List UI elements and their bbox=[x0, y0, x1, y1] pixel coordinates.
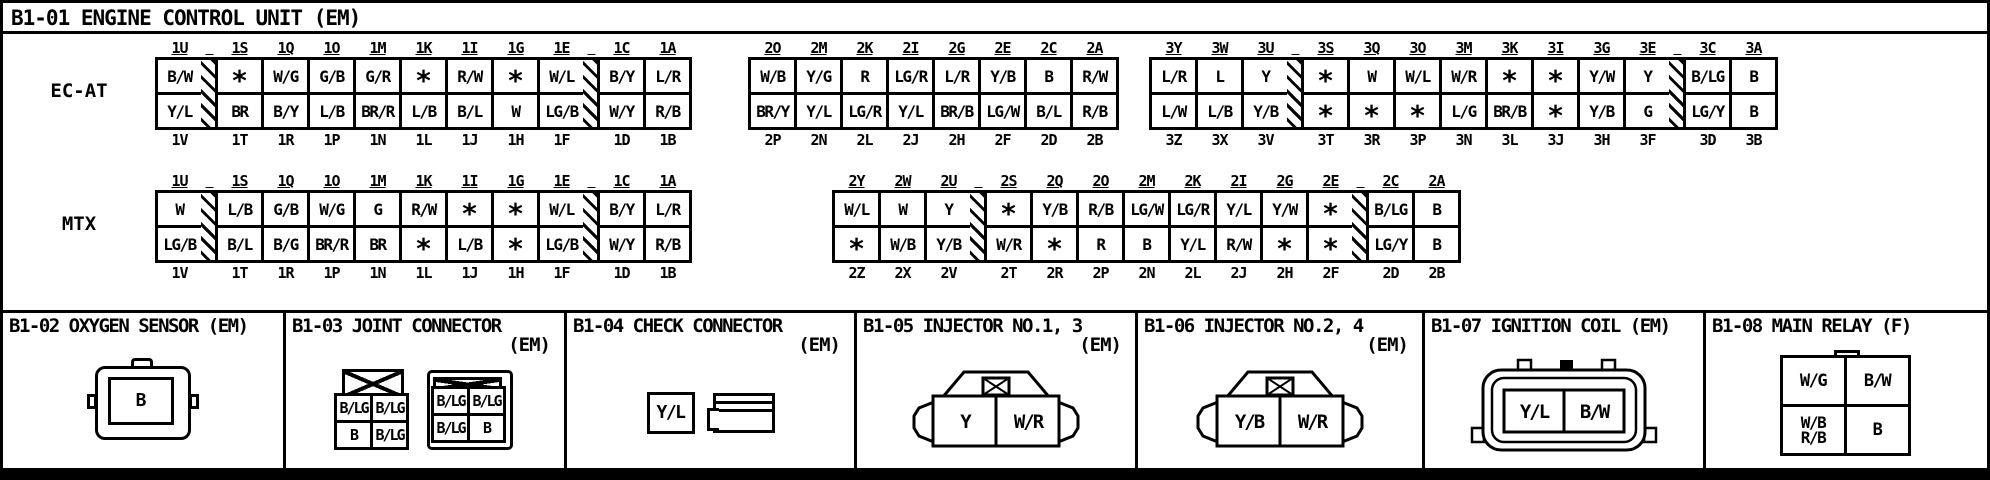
pin-cell: B bbox=[1729, 57, 1778, 95]
pin-header-label: 2O bbox=[1076, 171, 1125, 190]
pin-cell: L/R bbox=[643, 190, 692, 228]
pin-header-label: 1A bbox=[643, 171, 692, 190]
pin-header-label: 1S bbox=[215, 38, 264, 57]
pin-cell: * bbox=[1393, 92, 1442, 130]
pin-footer-label: 3N bbox=[1439, 130, 1488, 149]
pin-cell: L/R bbox=[932, 57, 981, 95]
pin-header-label: 2U bbox=[924, 171, 973, 190]
pin-cell: Y/B bbox=[924, 225, 973, 263]
pin-cell: B/LG bbox=[370, 393, 409, 423]
pin-header-label: 3G bbox=[1577, 38, 1626, 57]
pin-column: 2CB/LGLG/Y2D bbox=[1366, 171, 1415, 282]
pin-cell: LG/B bbox=[537, 92, 586, 130]
pin-footer-label: 1F bbox=[537, 263, 586, 282]
pin-column: 2KRLG/R2L bbox=[840, 38, 889, 149]
pin-header-label: 2Q bbox=[1030, 171, 1079, 190]
pin-cell: Y/W bbox=[1260, 190, 1309, 228]
pin-group: 2OW/BBR/Y2P2MY/GY/L2N2KRLG/R2L2ILG/RY/L2… bbox=[748, 38, 1119, 149]
pin-header-label: 2I bbox=[886, 38, 935, 57]
pin-column: 1G**1H bbox=[491, 171, 540, 282]
pin-cell: R/W bbox=[1214, 225, 1263, 263]
pin-footer-label: 2V bbox=[924, 263, 973, 282]
pin-cell: R/B bbox=[1070, 92, 1119, 130]
pin-column: 3UYY/B3V bbox=[1241, 38, 1290, 149]
pin-footer-label: 2N bbox=[1122, 263, 1171, 282]
pin-footer-label: 1B bbox=[643, 130, 692, 149]
pin-column: 3OW/L*3P bbox=[1393, 38, 1442, 149]
pin-footer-label: 1R bbox=[261, 263, 310, 282]
oxygen-connector: B bbox=[95, 366, 191, 440]
pin-header-label: 2K bbox=[1168, 171, 1217, 190]
pin-header-label: 1E bbox=[537, 38, 586, 57]
pin-cell: * bbox=[1306, 190, 1355, 228]
pin-cell: * bbox=[1347, 92, 1396, 130]
pin-header-label: 1K bbox=[399, 38, 448, 57]
pin-cell: W/L bbox=[1393, 57, 1442, 95]
pin-column: 1MGBR1N bbox=[353, 171, 402, 282]
pin-column: 2IY/LR/W2J bbox=[1214, 171, 1263, 282]
pin-header-label: 1I bbox=[445, 38, 494, 57]
pin-group: 2YW/L*2Z2WWW/B2X2UYY/B2V 2S*W/R2T2QY/B*2… bbox=[832, 171, 1461, 282]
pin-cell: W/G bbox=[1780, 355, 1847, 407]
pin-cell: W/Y bbox=[597, 225, 646, 263]
pin-column: 1QG/BB/G1R bbox=[261, 171, 310, 282]
pin-cell: B/W bbox=[1844, 355, 1911, 407]
pin-column: 2CBB/L2D bbox=[1024, 38, 1073, 149]
pin-header-label: 3E bbox=[1623, 38, 1672, 57]
pin-cell: * bbox=[1306, 225, 1355, 263]
pin-footer-label: 3T bbox=[1301, 130, 1350, 149]
pin-cell: * bbox=[399, 225, 448, 263]
pin-header-label: 2A bbox=[1412, 171, 1461, 190]
pin-header-label: 2E bbox=[978, 38, 1027, 57]
pin-cell: R/B bbox=[1076, 190, 1125, 228]
pin-header-label: 1Q bbox=[261, 171, 310, 190]
pin-header-label: 1M bbox=[353, 38, 402, 57]
panel-title: B1-02 OXYGEN SENSOR (EM) bbox=[3, 313, 283, 337]
pin-column: 2GY/W*2H bbox=[1260, 171, 1309, 282]
connector-panels-row: B1-02 OXYGEN SENSOR (EM) B B1-03 JOINT C… bbox=[0, 313, 1990, 471]
pin-cell: Y bbox=[1623, 57, 1672, 95]
pin-cell: G/B bbox=[307, 57, 356, 95]
pin-footer-label: 3V bbox=[1241, 130, 1290, 149]
pin-cell: W/Y bbox=[597, 92, 646, 130]
pin-footer-label: 3L bbox=[1485, 130, 1534, 149]
pin-cell: B/Y bbox=[597, 190, 646, 228]
pin-header-label: 2C bbox=[1024, 38, 1073, 57]
pin-cell: * bbox=[1260, 225, 1309, 263]
pin-header-label: 2W bbox=[878, 171, 927, 190]
pin-cell: Y/L bbox=[1214, 190, 1263, 228]
injector-connector: Y/B W/R bbox=[1174, 366, 1386, 456]
oxygen-connector-drawing: B bbox=[3, 337, 283, 468]
connector-row: EC-AT1UB/WY/L1V 1S*BR1T1QW/GB/Y1R1OG/BL/… bbox=[3, 38, 1987, 149]
pin-cell: L bbox=[1195, 57, 1244, 95]
pin-cell: R/W bbox=[445, 57, 494, 95]
pin-footer-label: 1D bbox=[597, 263, 646, 282]
pin-column: 1I*L/B1J bbox=[445, 171, 494, 282]
pin-header-label: 3Y bbox=[1149, 38, 1198, 57]
pin-cell: Y/W bbox=[1577, 57, 1626, 95]
pin-header-label: 1Q bbox=[261, 38, 310, 57]
pin-header-label: 3U bbox=[1241, 38, 1290, 57]
pin-footer-label: 2J bbox=[1214, 263, 1263, 282]
pin-cell: * bbox=[491, 57, 540, 95]
pin-footer-label: 1T bbox=[215, 263, 264, 282]
pin-column: 2E**2F bbox=[1306, 171, 1355, 282]
pin-header-label: 1K bbox=[399, 171, 448, 190]
pin-group: 1UWLG/B1V 1SL/BB/L1T1QG/BB/G1R1OW/GBR/R1… bbox=[155, 171, 692, 282]
pin-cell: * bbox=[445, 190, 494, 228]
pin-header-label: 1U bbox=[155, 38, 204, 57]
pin-footer-label: 3H bbox=[1577, 130, 1626, 149]
pin-cell: BR/Y bbox=[748, 92, 797, 130]
pin-header-label: 1U bbox=[155, 171, 204, 190]
pin-header-label: 2M bbox=[1122, 171, 1171, 190]
pin-header-label: 1O bbox=[307, 171, 356, 190]
joint-connector-drawing: B/LG B/LG B B/LG B/LG B/LG B/LG B bbox=[286, 351, 564, 468]
pin-column: 2OW/BBR/Y2P bbox=[748, 38, 797, 149]
pin-cell: W/L bbox=[537, 57, 586, 95]
pin-cell: W bbox=[1347, 57, 1396, 95]
pin-footer-label: 2P bbox=[748, 130, 797, 149]
pin-column: 1UWLG/B1V bbox=[155, 171, 204, 282]
pin-footer-label: 1H bbox=[491, 263, 540, 282]
pin-footer-label: 3Z bbox=[1149, 130, 1198, 149]
pin-header-label: 3S bbox=[1301, 38, 1350, 57]
pin-header-label: 3O bbox=[1393, 38, 1442, 57]
joint-connector-left: B/LG B/LG B B/LG bbox=[337, 369, 409, 450]
pin-cell: Y bbox=[1241, 57, 1290, 95]
connector-row: MTX1UWLG/B1V 1SL/BB/L1T1QG/BB/G1R1OW/GBR… bbox=[3, 171, 1987, 282]
pin-cell: B bbox=[1122, 225, 1171, 263]
pin-footer-label: 1B bbox=[643, 263, 692, 282]
pin-cell: W bbox=[491, 92, 540, 130]
pin-cell: * bbox=[1485, 57, 1534, 95]
pin-cell: W/L bbox=[537, 190, 586, 228]
pin-header-label: 2S bbox=[984, 171, 1033, 190]
pin-footer-label: 2B bbox=[1412, 263, 1461, 282]
pin-cell: BR/B bbox=[932, 92, 981, 130]
pin-cell: B/W bbox=[1580, 401, 1611, 423]
pin-footer-label: 1F bbox=[537, 130, 586, 149]
pin-footer-label: 1N bbox=[353, 130, 402, 149]
pin-header-label: 2O bbox=[748, 38, 797, 57]
pin-header-label: 1O bbox=[307, 38, 356, 57]
pin-cell: B bbox=[1844, 404, 1911, 456]
pin-footer-label: 3R bbox=[1347, 130, 1396, 149]
pin-cell: Y/B bbox=[978, 57, 1027, 95]
pin-cell: B/G bbox=[261, 225, 310, 263]
pin-column: 3WLL/B3X bbox=[1195, 38, 1244, 149]
page-bottom-rule bbox=[0, 471, 1990, 480]
pin-column: 3S**3T bbox=[1301, 38, 1350, 149]
pin-footer-label: 2Z bbox=[832, 263, 881, 282]
panel-title: B1-07 IGNITION COIL (EM) bbox=[1425, 313, 1703, 337]
ecu-title: B1-01 ENGINE CONTROL UNIT (EM) bbox=[3, 3, 1987, 34]
pin-cell: W/R bbox=[1014, 411, 1045, 433]
pin-column: 1EW/LLG/B1F bbox=[537, 38, 586, 149]
pin-cell: BR bbox=[215, 92, 264, 130]
pin-group: 1UB/WY/L1V 1S*BR1T1QW/GB/Y1R1OG/BL/B1P1M… bbox=[155, 38, 692, 149]
pin-column: 1QW/GB/Y1R bbox=[261, 38, 310, 149]
pin-cell: R/W bbox=[399, 190, 448, 228]
main-relay-connector: W/G B/W W/B R/B B bbox=[1783, 350, 1911, 456]
pin-column: 2QY/B*2R bbox=[1030, 171, 1079, 282]
pin-footer-label: 3F bbox=[1623, 130, 1672, 149]
pin-footer-label: 2R bbox=[1030, 263, 1079, 282]
pin-footer-label: 2F bbox=[1306, 263, 1355, 282]
pin-footer-label: 1T bbox=[215, 130, 264, 149]
pin-header-label: 2A bbox=[1070, 38, 1119, 57]
pin-cell: L/G bbox=[1439, 92, 1488, 130]
pin-footer-label: 1H bbox=[491, 130, 540, 149]
pin-footer-label: 1D bbox=[597, 130, 646, 149]
panel-joint-connector: B1-03 JOINT CONNECTOR (EM) B/LG B/LG B B… bbox=[283, 310, 567, 471]
pin-footer-label: 2D bbox=[1024, 130, 1073, 149]
pin-cell: W/G bbox=[261, 57, 310, 95]
pin-header-label: 3K bbox=[1485, 38, 1534, 57]
pin-column: 1EW/LLG/B1F bbox=[537, 171, 586, 282]
pin-footer-label: 3X bbox=[1195, 130, 1244, 149]
pin-cell: * bbox=[1531, 57, 1580, 95]
pin-header-label: 2E bbox=[1306, 171, 1355, 190]
pin-cell: LG/Y bbox=[1366, 225, 1415, 263]
pin-cell: L/R bbox=[1149, 57, 1198, 95]
pin-cell: B/L bbox=[1024, 92, 1073, 130]
pin-cell: L/B bbox=[215, 190, 264, 228]
pin-column: 1CB/YW/Y1D bbox=[597, 171, 646, 282]
pin-cell: R/B bbox=[643, 225, 692, 263]
pin-column: 2WWW/B2X bbox=[878, 171, 927, 282]
pin-header-label: 3Q bbox=[1347, 38, 1396, 57]
pin-footer-label: 1J bbox=[445, 130, 494, 149]
pin-cell: B bbox=[1729, 92, 1778, 130]
pin-footer-label: 1J bbox=[445, 263, 494, 282]
pin-footer-label: 1L bbox=[399, 130, 448, 149]
pin-header-label: 2Y bbox=[832, 171, 881, 190]
pin-cell: * bbox=[984, 190, 1033, 228]
pin-cell: Y/L bbox=[1168, 225, 1217, 263]
pin-footer-label: 3D bbox=[1683, 130, 1732, 149]
pin-column: 2OR/BR2P bbox=[1076, 171, 1125, 282]
pin-column: 1G*W1H bbox=[491, 38, 540, 149]
pin-header-label: 2G bbox=[932, 38, 981, 57]
pin-footer-label: 2F bbox=[978, 130, 1027, 149]
pin-cell: B/LG bbox=[431, 386, 470, 416]
pin-cell: B/LG bbox=[334, 393, 373, 423]
pin-cell: LG/B bbox=[537, 225, 586, 263]
ignition-connector: Y/L B/W bbox=[1462, 350, 1666, 460]
pin-column: 1KR/W*1L bbox=[399, 171, 448, 282]
pin-cell: R/W bbox=[1070, 57, 1119, 95]
pin-cell: Y/L bbox=[886, 92, 935, 130]
pin-column: 2AR/WR/B2B bbox=[1070, 38, 1119, 149]
pin-groups: 1UB/WY/L1V 1S*BR1T1QW/GB/Y1R1OG/BL/B1P1M… bbox=[155, 38, 1778, 149]
pin-cell: BR bbox=[353, 225, 402, 263]
pin-cell: W bbox=[155, 190, 204, 228]
pin-column: 1OW/GBR/R1P bbox=[307, 171, 356, 282]
pin-footer-label: 2X bbox=[878, 263, 927, 282]
ignition-connector-drawing: Y/L B/W bbox=[1425, 341, 1703, 468]
pin-column: 2S*W/R2T bbox=[984, 171, 1033, 282]
pin-column: 3MW/RL/G3N bbox=[1439, 38, 1488, 149]
pin-header-label: 1M bbox=[353, 171, 402, 190]
pin-cell: W/B bbox=[878, 225, 927, 263]
pin-header-label: 3C bbox=[1683, 38, 1732, 57]
pin-group: 3YL/RL/W3Z3WLL/B3X3UYY/B3V 3S**3T3QW*3R3… bbox=[1149, 38, 1778, 149]
connector-type-label: MTX bbox=[3, 171, 155, 235]
pin-groups: 1UWLG/B1V 1SL/BB/L1T1QG/BB/G1R1OW/GBR/R1… bbox=[155, 171, 1461, 282]
pin-cell: W/B R/B bbox=[1780, 404, 1847, 456]
pin-cell: W/R bbox=[1439, 57, 1488, 95]
pin-header-label: 1A bbox=[643, 38, 692, 57]
main-relay-drawing: W/G B/W W/B R/B B bbox=[1706, 337, 1987, 468]
pin-footer-label: 2L bbox=[1168, 263, 1217, 282]
pin-footer-label: 1L bbox=[399, 263, 448, 282]
pin-cell: BR/R bbox=[353, 92, 402, 130]
pin-column: 2GL/RBR/B2H bbox=[932, 38, 981, 149]
pin-header-label: 1G bbox=[491, 38, 540, 57]
pin-header-label: 1E bbox=[537, 171, 586, 190]
pin-cell: B bbox=[1024, 57, 1073, 95]
injector-connector-drawing: Y W/R bbox=[857, 353, 1135, 468]
panel-ignition-coil: B1-07 IGNITION COIL (EM) Y/L B/W bbox=[1422, 310, 1706, 471]
pin-cell: R bbox=[1076, 225, 1125, 263]
pin-cell: L/B bbox=[399, 92, 448, 130]
pin-cell: B/LG bbox=[370, 420, 409, 450]
pin-cell: B/LG bbox=[1683, 57, 1732, 95]
panel-injector-1-3: B1-05 INJECTOR NO.1, 3 (EM) Y W/R bbox=[854, 310, 1138, 471]
pin-footer-label: 2J bbox=[886, 130, 935, 149]
pin-cell: W/B bbox=[748, 57, 797, 95]
panel-injector-2-4: B1-06 INJECTOR NO.2, 4 (EM) Y/B W/R bbox=[1135, 310, 1425, 471]
pin-cell: * bbox=[491, 190, 540, 228]
pin-footer-label: 2H bbox=[1260, 263, 1309, 282]
pin-column: 1CB/YW/Y1D bbox=[597, 38, 646, 149]
pin-column: 3K*BR/B3L bbox=[1485, 38, 1534, 149]
pin-cell: R/B bbox=[643, 92, 692, 130]
check-connector-icon bbox=[713, 393, 775, 433]
pin-cell: Y/L bbox=[794, 92, 843, 130]
pin-cell: LG/W bbox=[978, 92, 1027, 130]
pin-cell: B/LG bbox=[1366, 190, 1415, 228]
pin-cell: LG/R bbox=[1168, 190, 1217, 228]
pin-cell: Y bbox=[924, 190, 973, 228]
pin-footer-label: 2T bbox=[984, 263, 1033, 282]
pin-column: 1UB/WY/L1V bbox=[155, 38, 204, 149]
pin-footer-label: 2P bbox=[1076, 263, 1125, 282]
pin-cell: G bbox=[1623, 92, 1672, 130]
pin-footer-label: 1V bbox=[155, 263, 204, 282]
pin-footer-label: 2B bbox=[1070, 130, 1119, 149]
pin-cell: LG/W bbox=[1122, 190, 1171, 228]
pin-cell: L/W bbox=[1149, 92, 1198, 130]
pin-cell: Y/L bbox=[647, 392, 695, 434]
pin-column: 3QW*3R bbox=[1347, 38, 1396, 149]
pin-cell: Y/B bbox=[1241, 92, 1290, 130]
pin-cell: LG/R bbox=[840, 92, 889, 130]
check-connector-drawing: Y/L bbox=[567, 357, 854, 468]
pin-footer-label: 1P bbox=[307, 263, 356, 282]
pin-cell: B/LG bbox=[467, 386, 506, 416]
pin-header-label: 3I bbox=[1531, 38, 1580, 57]
pin-column: 2MY/GY/L2N bbox=[794, 38, 843, 149]
pin-column: 1AL/RR/B1B bbox=[643, 38, 692, 149]
panel-main-relay: B1-08 MAIN RELAY (F) W/G B/W W/B R/B B bbox=[1703, 310, 1990, 471]
pin-cell: B/L bbox=[215, 225, 264, 263]
pin-header-label: 2G bbox=[1260, 171, 1309, 190]
pin-cell: B bbox=[108, 377, 174, 425]
pin-cell: G/R bbox=[353, 57, 402, 95]
pin-header-label: 2K bbox=[840, 38, 889, 57]
pin-column: 3I**3J bbox=[1531, 38, 1580, 149]
pin-footer-label: 1N bbox=[353, 263, 402, 282]
pin-cell: * bbox=[1301, 57, 1350, 95]
pin-cell: * bbox=[1030, 225, 1079, 263]
pin-column: 2ABB2B bbox=[1412, 171, 1461, 282]
pin-cell: B/Y bbox=[597, 57, 646, 95]
pin-column: 2KLG/RY/L2L bbox=[1168, 171, 1217, 282]
pin-cell: W/R bbox=[1298, 411, 1329, 433]
pin-footer-label: 1P bbox=[307, 130, 356, 149]
pin-cell: Y/B bbox=[1030, 190, 1079, 228]
pin-cell: LG/Y bbox=[1683, 92, 1732, 130]
injector-connector-drawing: Y/B W/R bbox=[1138, 353, 1422, 468]
pin-header-label: 1I bbox=[445, 171, 494, 190]
pin-cell: G bbox=[353, 190, 402, 228]
pin-column: 1OG/BL/B1P bbox=[307, 38, 356, 149]
pin-cell: B bbox=[467, 413, 506, 443]
joint-connector-right: B/LG B/LG B/LG B bbox=[427, 370, 513, 450]
panel-title: B1-08 MAIN RELAY (F) bbox=[1706, 313, 1987, 337]
pin-footer-label: 2L bbox=[840, 130, 889, 149]
ecu-rows: EC-AT1UB/WY/L1V 1S*BR1T1QW/GB/Y1R1OG/BL/… bbox=[3, 38, 1987, 282]
pin-header-label: 1G bbox=[491, 171, 540, 190]
pin-cell: W/R bbox=[984, 225, 1033, 263]
pin-cell: Y/G bbox=[794, 57, 843, 95]
pin-cell: R bbox=[840, 57, 889, 95]
wiring-diagram-page: B1-01 ENGINE CONTROL UNIT (EM) EC-AT1UB/… bbox=[0, 0, 1990, 480]
pin-cell: * bbox=[491, 225, 540, 263]
pin-cell: LG/R bbox=[886, 57, 935, 95]
pin-footer-label: 3J bbox=[1531, 130, 1580, 149]
pin-column: 1K*L/B1L bbox=[399, 38, 448, 149]
pin-header-label: 3M bbox=[1439, 38, 1488, 57]
pin-column: 2MLG/WB2N bbox=[1122, 171, 1171, 282]
pin-column: 2YW/L*2Z bbox=[832, 171, 881, 282]
pin-column: 2EY/BLG/W2F bbox=[978, 38, 1027, 149]
connector-type-label: EC-AT bbox=[3, 38, 155, 102]
pin-header-label: 2C bbox=[1366, 171, 1415, 190]
pin-header-label: 1S bbox=[215, 171, 264, 190]
panel-oxygen-sensor: B1-02 OXYGEN SENSOR (EM) B bbox=[0, 310, 286, 471]
pin-header-label: 2M bbox=[794, 38, 843, 57]
pin-column: 3ABB3B bbox=[1729, 38, 1778, 149]
pin-cell: B/L bbox=[445, 92, 494, 130]
pin-column: 1IR/WB/L1J bbox=[445, 38, 494, 149]
pin-column: 2UYY/B2V bbox=[924, 171, 973, 282]
pin-column: 3YL/RL/W3Z bbox=[1149, 38, 1198, 149]
pin-footer-label: 2H bbox=[932, 130, 981, 149]
pin-cell: Y/L bbox=[155, 92, 204, 130]
pin-header-label: 1C bbox=[597, 171, 646, 190]
pin-cell: W bbox=[878, 190, 927, 228]
pin-footer-label: 1R bbox=[261, 130, 310, 149]
pin-column: 1S*BR1T bbox=[215, 38, 264, 149]
pin-header-label: 2I bbox=[1214, 171, 1263, 190]
pin-cell: W/G bbox=[307, 190, 356, 228]
